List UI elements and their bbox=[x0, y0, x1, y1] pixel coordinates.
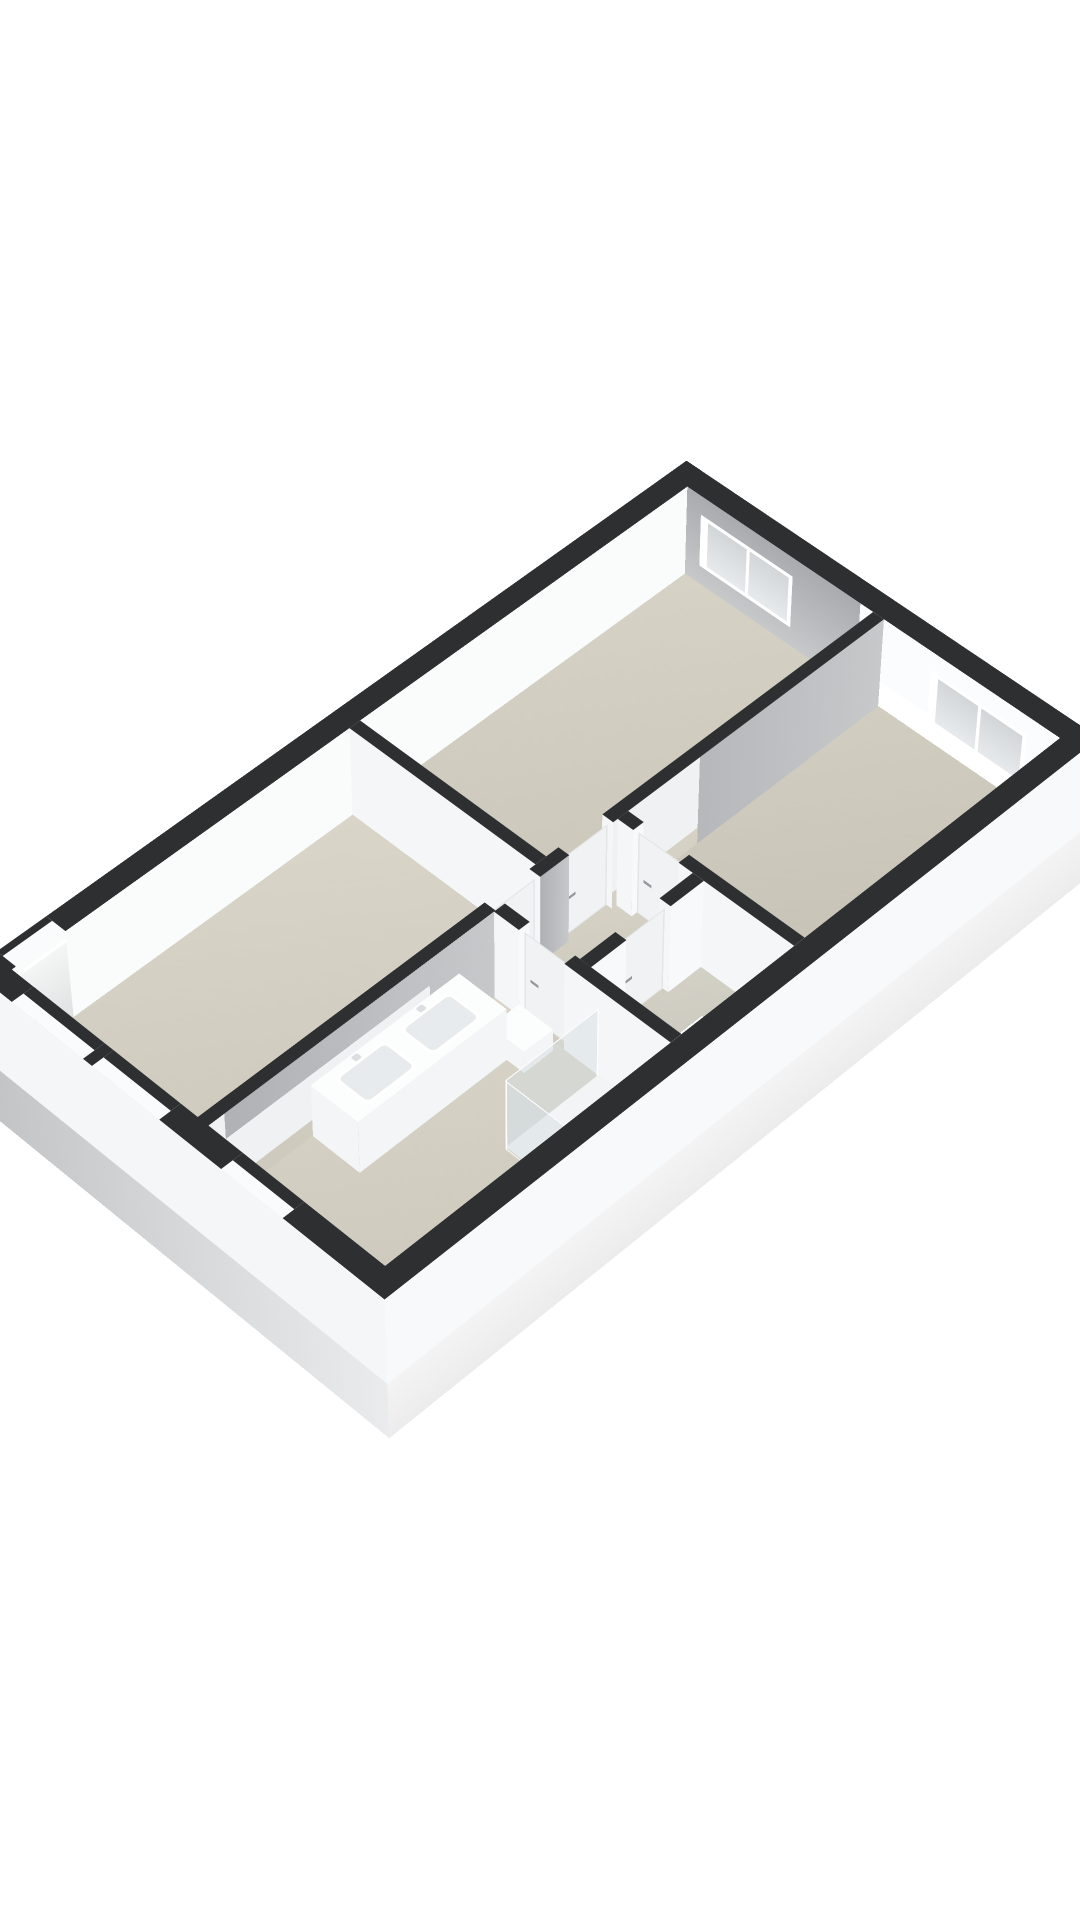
wall-int-h1-a-south bbox=[616, 819, 633, 917]
floorplan-3d-render bbox=[0, 0, 1080, 1920]
render-viewport bbox=[0, 0, 1080, 1920]
